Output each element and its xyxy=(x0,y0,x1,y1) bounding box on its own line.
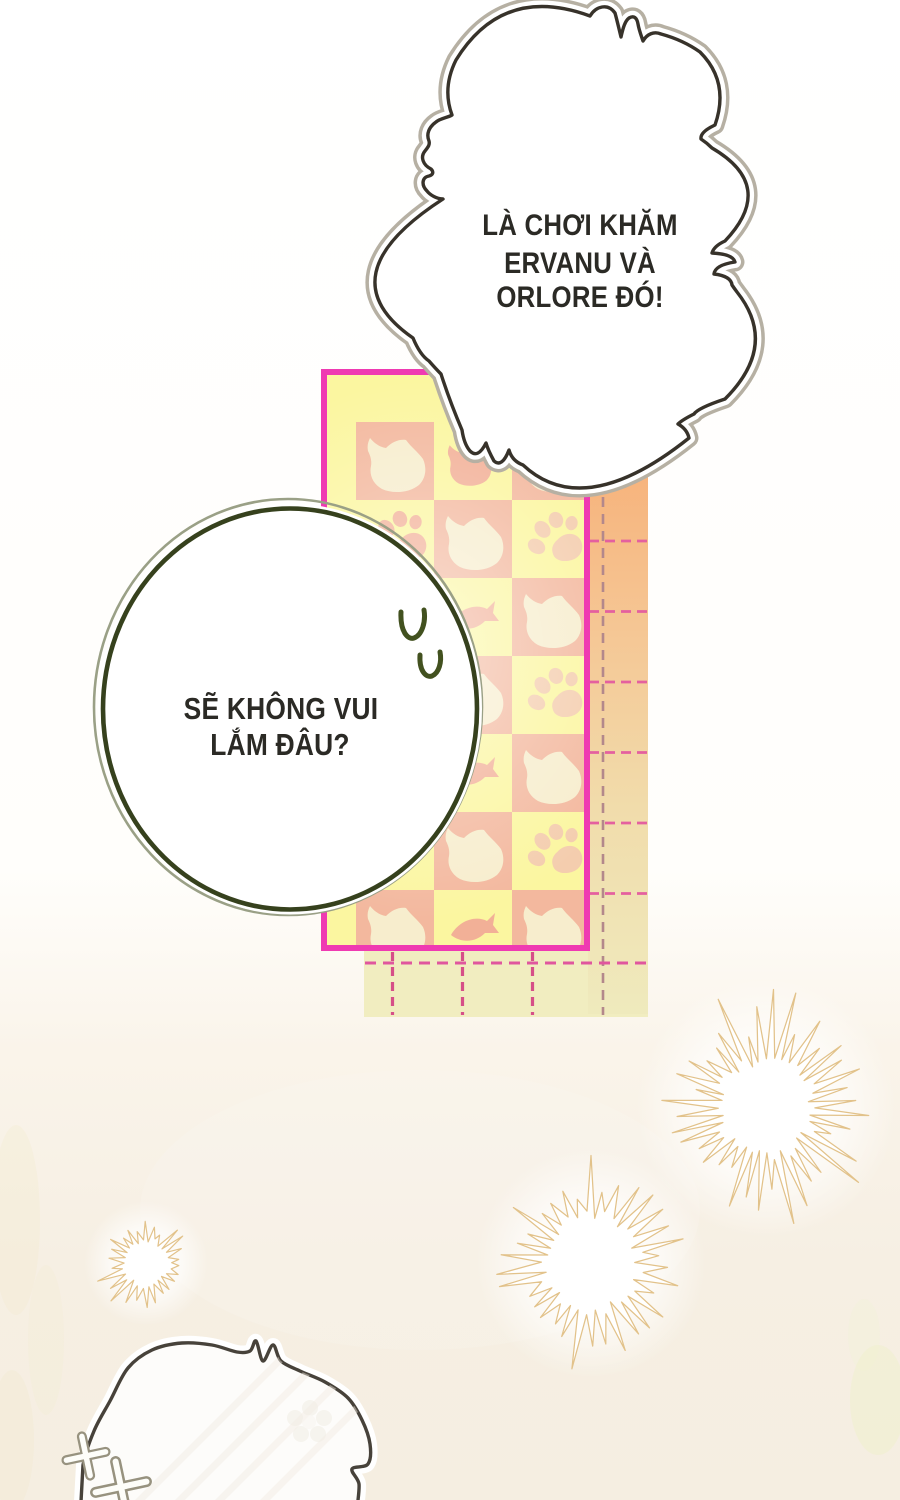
svg-text:ORLORE ĐÓ!: ORLORE ĐÓ! xyxy=(496,280,663,313)
svg-text:LÀ CHƠI KHĂM: LÀ CHƠI KHĂM xyxy=(482,208,678,241)
svg-text:LẮM ĐÂU?: LẮM ĐÂU? xyxy=(210,726,350,763)
svg-text:ERVANU VÀ: ERVANU VÀ xyxy=(504,246,656,279)
svg-text:SẼ KHÔNG VUI: SẼ KHÔNG VUI xyxy=(184,690,379,727)
